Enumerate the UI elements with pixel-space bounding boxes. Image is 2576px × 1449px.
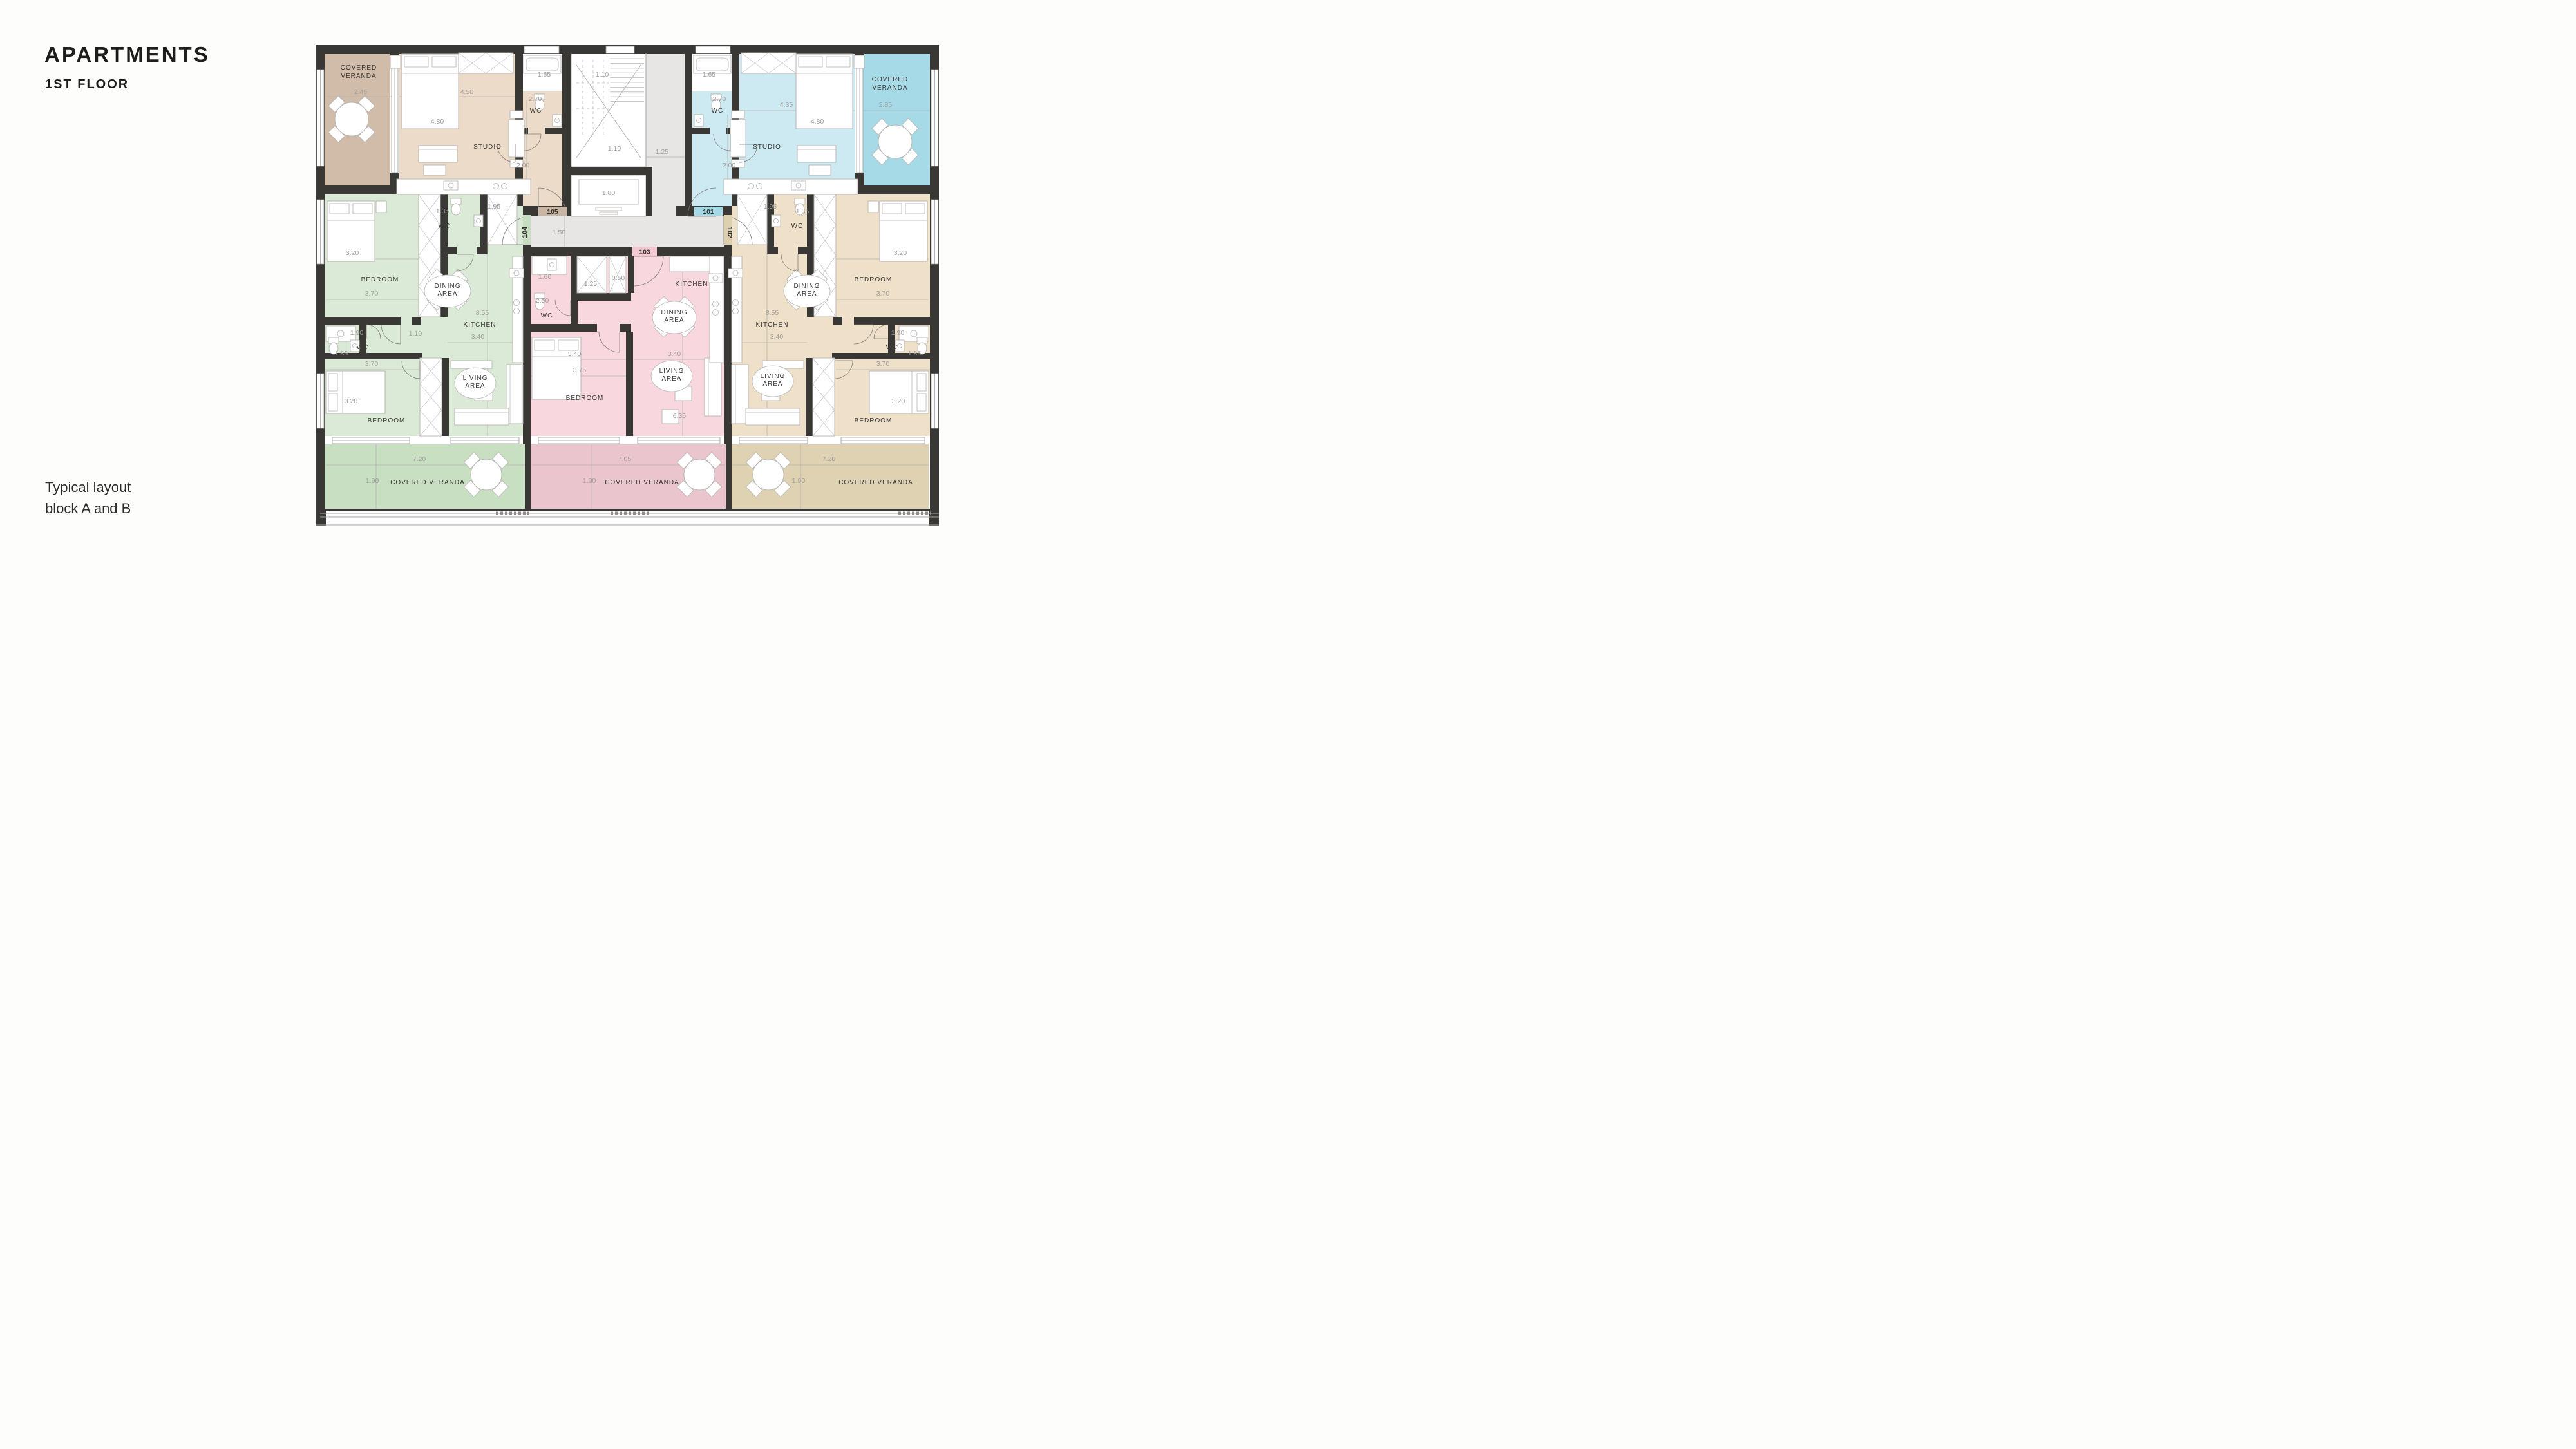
kitchen-sink	[728, 269, 743, 278]
label-wc: WC	[886, 344, 898, 351]
label-7-20: 7.20	[413, 455, 426, 463]
label-veranda: VERANDA	[872, 84, 907, 91]
wall	[442, 358, 449, 436]
closet	[741, 53, 796, 73]
pillow	[330, 204, 349, 214]
wall	[657, 247, 724, 256]
label-2-45: 2.45	[354, 88, 368, 96]
wall	[628, 256, 634, 293]
kitchen-sink	[708, 274, 723, 283]
wall	[833, 317, 842, 325]
label-1-90: 1.90	[366, 477, 379, 485]
wall	[523, 436, 531, 444]
wall	[685, 53, 692, 206]
closet	[459, 53, 513, 73]
label-wc: WC	[791, 223, 804, 230]
label-area: AREA	[762, 381, 782, 388]
elevator-door	[600, 212, 618, 214]
wall	[525, 444, 531, 510]
sink	[474, 215, 483, 227]
label-2-70: 2.70	[713, 95, 726, 103]
kitchen-counter	[710, 256, 724, 363]
label-wc: WC	[357, 344, 369, 351]
pillow	[905, 204, 925, 214]
sink	[694, 115, 703, 126]
wall	[562, 53, 571, 167]
sink	[547, 259, 556, 270]
label-3-40: 3.40	[668, 350, 681, 358]
floor-plan: 105101104102103COVEREDVERANDA2.454.504.8…	[0, 0, 1010, 568]
furniture-rect	[451, 361, 492, 368]
label-7-05: 7.05	[618, 455, 632, 463]
wall	[724, 436, 732, 444]
label-102: 102	[726, 227, 734, 238]
kitchen-counter	[724, 179, 858, 194]
pillow	[535, 340, 554, 350]
label-2-50: 2.50	[536, 297, 549, 305]
label-kitchen: KITCHEN	[756, 321, 789, 328]
label-covered: COVERED	[341, 64, 377, 71]
label-1-10: 1.10	[608, 145, 621, 153]
wall	[724, 256, 732, 436]
wall	[806, 358, 813, 436]
label-103: 103	[639, 248, 650, 256]
sofa	[797, 146, 836, 162]
wall	[412, 317, 421, 325]
label-2-85: 2.85	[879, 101, 893, 109]
wall	[325, 317, 401, 325]
label-1-90: 1.90	[792, 477, 806, 485]
footer-line-1: Typical layout	[45, 477, 131, 498]
label-1-65: 1.65	[703, 71, 716, 79]
round-table	[684, 459, 715, 490]
label-living: LIVING	[463, 375, 488, 382]
wall	[316, 510, 326, 526]
label-3-20: 3.20	[346, 249, 359, 257]
wall	[562, 167, 646, 175]
label-1-35: 1.35	[796, 207, 810, 215]
page-footer: Typical layout block A and B	[45, 477, 131, 519]
label-1-10: 1.10	[596, 71, 609, 79]
pillow	[432, 57, 456, 67]
pillow	[328, 393, 337, 411]
label-7-20: 7.20	[822, 455, 836, 463]
label-1-90: 1.90	[891, 329, 905, 337]
label-3-40: 3.40	[471, 333, 485, 341]
sofa	[746, 408, 800, 425]
sink	[772, 215, 781, 227]
label-area: AREA	[661, 375, 681, 383]
label-1-50: 1.50	[553, 229, 566, 236]
wall	[620, 324, 631, 332]
sofa	[419, 146, 457, 162]
pillow	[404, 57, 428, 67]
label-4-80: 4.80	[431, 118, 444, 126]
furniture-rect	[730, 120, 746, 157]
label-3-40: 3.40	[770, 333, 784, 341]
elevator-door	[596, 207, 621, 211]
label-101: 101	[703, 208, 714, 216]
label-area: AREA	[437, 290, 457, 298]
wall	[626, 332, 633, 436]
round-table	[878, 125, 912, 158]
label-4-80: 4.80	[811, 118, 824, 126]
label-3-70: 3.70	[365, 290, 379, 298]
label-kitchen: KITCHEN	[676, 281, 708, 288]
wall	[726, 444, 732, 510]
wall	[531, 247, 632, 256]
floor-plan-svg: 105101104102103COVEREDVERANDA2.454.504.8…	[0, 0, 1010, 568]
label-1-85: 1.85	[335, 350, 348, 357]
furniture-rect	[510, 111, 523, 118]
label-bedroom: BEDROOM	[855, 417, 893, 424]
label-1-35: 1.35	[436, 207, 450, 215]
label-6-35: 6.35	[673, 412, 687, 420]
sink	[553, 115, 562, 126]
label-area: AREA	[465, 383, 485, 390]
pillow	[882, 204, 902, 214]
sofa	[455, 408, 509, 425]
round-table	[471, 459, 502, 490]
label-wc: WC	[439, 223, 451, 230]
label-1-85: 1.85	[908, 350, 922, 357]
pillow	[917, 374, 926, 391]
kitchen-sink	[444, 181, 458, 190]
pillow	[799, 57, 822, 67]
label-3-20: 3.20	[892, 397, 905, 405]
label-wc: WC	[541, 312, 553, 319]
pillow	[917, 393, 926, 411]
label-studio: STUDIO	[753, 144, 781, 151]
label-bedroom: BEDROOM	[361, 276, 399, 283]
furniture-rect	[509, 120, 524, 157]
label-1-25: 1.25	[584, 280, 598, 288]
wall	[767, 247, 778, 254]
label-4-50: 4.50	[460, 88, 474, 96]
pillow	[558, 340, 578, 350]
toilet-bowl	[451, 204, 460, 215]
label-wc: WC	[530, 108, 542, 115]
wall	[477, 247, 488, 254]
pillow	[826, 57, 850, 67]
wall	[571, 256, 578, 324]
label-1-90: 1.90	[350, 329, 364, 337]
footer-line-2: block A and B	[45, 498, 131, 519]
label-wc: WC	[712, 108, 724, 115]
wall	[571, 293, 631, 301]
label-0-60: 0.60	[612, 274, 625, 282]
label-living: LIVING	[659, 368, 685, 375]
zone-veranda-101	[863, 53, 930, 190]
furniture-rect	[854, 55, 864, 68]
round-table	[335, 102, 368, 136]
page-title: APARTMENTS	[44, 43, 210, 67]
pillow	[328, 374, 337, 391]
wall	[448, 247, 457, 254]
label-veranda: VERANDA	[341, 73, 376, 80]
label-1-95: 1.95	[488, 203, 501, 211]
label-1-10: 1.10	[409, 330, 422, 337]
label-3-20: 3.20	[894, 249, 907, 257]
label-8-55: 8.55	[766, 309, 779, 317]
label-studio: STUDIO	[473, 144, 502, 151]
label-covered-veranda: COVERED VERANDA	[390, 479, 465, 486]
label-3-70: 3.70	[876, 360, 890, 368]
label-1-60: 1.60	[538, 273, 552, 281]
label-1-95: 1.95	[764, 203, 777, 211]
label-bedroom: BEDROOM	[855, 276, 893, 283]
furniture-rect	[809, 165, 831, 175]
label-area: AREA	[664, 317, 684, 324]
wall	[523, 256, 531, 436]
label-1-80: 1.80	[602, 189, 616, 197]
label-covered-veranda: COVERED VERANDA	[605, 479, 679, 486]
label-1-25: 1.25	[656, 148, 669, 156]
page-subtitle: 1ST FLOOR	[45, 77, 129, 92]
label-dining: DINING	[435, 283, 461, 290]
sofa	[705, 358, 721, 416]
kitchen-counter	[397, 179, 531, 194]
label-kitchen: KITCHEN	[464, 321, 497, 328]
wall	[545, 128, 562, 134]
label-2-70: 2.70	[529, 95, 542, 103]
label-2-00: 2.00	[516, 162, 530, 169]
label-4-35: 4.35	[780, 101, 793, 109]
label-3-70: 3.70	[876, 290, 890, 298]
label-3-40: 3.40	[568, 350, 582, 358]
wall	[854, 317, 930, 325]
label-105: 105	[547, 208, 558, 216]
label-bedroom: BEDROOM	[566, 395, 604, 402]
furniture-rect	[732, 111, 744, 118]
label-area: AREA	[797, 290, 817, 298]
label-living: LIVING	[761, 373, 786, 380]
wall	[531, 324, 597, 332]
label-1-65: 1.65	[538, 71, 551, 79]
round-table	[753, 459, 784, 490]
label-dining: DINING	[794, 283, 820, 290]
kitchen-sink	[791, 181, 806, 190]
label-3-20: 3.20	[345, 397, 358, 405]
furniture-rect	[390, 55, 401, 68]
pillow	[353, 204, 372, 214]
label-3-70: 3.70	[365, 360, 379, 368]
label-dining: DINING	[661, 309, 688, 316]
wall	[325, 509, 937, 511]
furniture-rect	[376, 201, 386, 213]
label-2-00: 2.00	[723, 162, 736, 169]
label-covered-veranda: COVERED VERANDA	[838, 479, 913, 486]
label-8-55: 8.55	[476, 309, 489, 317]
kitchen-sink	[509, 269, 524, 278]
label-bedroom: BEDROOM	[368, 417, 406, 424]
furniture-rect	[424, 165, 446, 175]
wall	[692, 128, 710, 134]
wall	[798, 247, 807, 254]
wall	[646, 167, 652, 216]
furniture-rect	[868, 201, 878, 213]
label-3-75: 3.75	[573, 366, 587, 374]
label-104: 104	[521, 227, 529, 238]
label-1-90: 1.90	[583, 477, 596, 485]
label-covered: COVERED	[872, 76, 908, 83]
